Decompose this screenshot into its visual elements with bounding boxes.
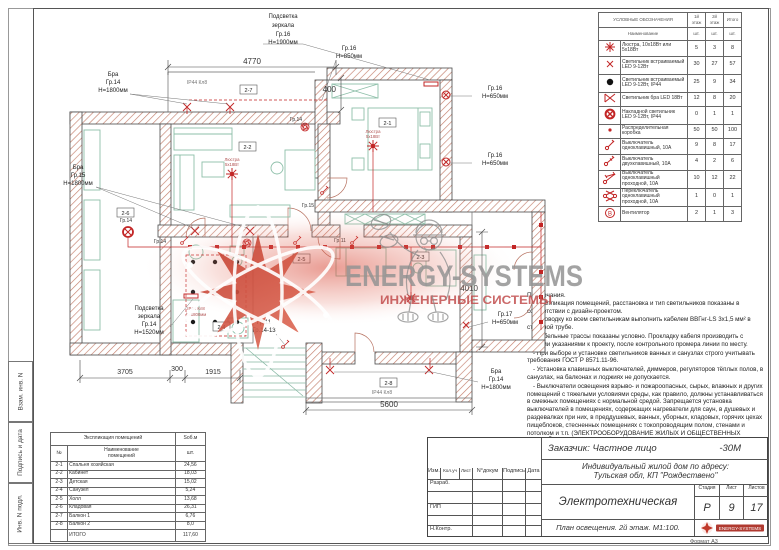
notes-block: Примечания. - Экспликация помещений, рас… [527, 292, 767, 446]
role-nkontr: Н.Контр. [428, 526, 473, 536]
stamp-inv-podl: Инв. N подл. [8, 483, 33, 544]
title-block: Изм. Кол.уч Лист N°докум Подпись Дата Ра… [427, 437, 768, 537]
table-row: 2-2Кабинет18,03 [51, 470, 206, 479]
col-podpis: Подпись [503, 468, 526, 480]
rooms-explication-table: Экспликация помещенийSоб.м №Наименование… [50, 432, 206, 542]
company-logo: ENERGY-SYSTEMS [695, 520, 769, 536]
sheet-value: 9 [720, 497, 744, 520]
switch-one-gang-icon [599, 138, 621, 154]
section-title: Электротехническая часть [542, 485, 695, 520]
object-address-line1: Индивидуальный жилой дом по адресу: [542, 462, 769, 471]
table-row: 2-7Балкон 16,76 [51, 513, 206, 522]
chandelier-icon [599, 41, 621, 57]
object-address-line2: Тульская обл, КП "Рождествено" [542, 471, 769, 480]
sconce-icon [599, 92, 621, 106]
logo-star-icon [701, 522, 713, 534]
stamp-vzam-inv: Взам. инв. N [8, 361, 33, 422]
legend-title: УСЛОВНЫЕ ОБОЗНАЧЕНИЯ [599, 13, 688, 28]
legend-table: УСЛОВНЫЕ ОБОЗНАЧЕНИЯ 1й этаж 2й этаж Ито… [598, 12, 742, 222]
svg-text:В: В [607, 211, 611, 217]
surface-led-icon [599, 106, 621, 124]
stage-label: Стадия [695, 485, 720, 497]
junction-box-icon [599, 124, 621, 138]
sheets-value: 17 [744, 497, 769, 520]
table-row: 2-5Холл13,68 [51, 496, 206, 505]
legend-col-total: Итого [724, 13, 742, 28]
table-row: 2-3Детская15,02 [51, 479, 206, 488]
format-label: Формат А3 [690, 539, 718, 545]
switch-pass-through-icon [599, 170, 621, 188]
table-row: 2-8Балкон 28,0 [51, 521, 206, 530]
fan-icon: В [599, 206, 621, 222]
note-item: - При выборе и установке светильников ва… [527, 350, 767, 366]
drawing-title: План освещения. 2й этаж. М1:100. [542, 520, 695, 536]
legend-col-name: Наименование [599, 28, 688, 41]
sheet-label: Лист [720, 485, 744, 497]
note-item: - Экспликация помещений, расстановка и т… [527, 300, 767, 316]
expl-total-value: 117,60 [175, 530, 205, 542]
recessed-led-icon [599, 56, 621, 74]
stamp-podpis-data: Подпись и дата [8, 422, 33, 483]
table-row: 2-6Кладовая26,31 [51, 504, 206, 513]
col-dokum: N°докум [473, 468, 503, 480]
drawing-sheet: Взам. инв. N Подпись и дата Инв. N подл.… [0, 0, 779, 550]
table-row: 2-4Санузел5,24 [51, 487, 206, 496]
expl-total-label: ИТОГО [68, 530, 176, 542]
col-koluch: Кол.уч [441, 468, 460, 480]
table-row: 2-1Спальня хозяйская24,56 [51, 462, 206, 471]
sheets-label: Листов [744, 485, 769, 497]
col-izm: Изм. [428, 468, 441, 480]
col-list: Лист [460, 468, 473, 480]
stage-value: Р [695, 497, 720, 520]
customer-label: Заказчик: Частное лицо [548, 443, 657, 454]
note-item: - Установка клавишных выключателей, димм… [527, 366, 767, 382]
expl-title: Экспликация помещений [51, 433, 176, 446]
recessed-led-ip44-icon [599, 74, 621, 92]
crossover-switch-icon [599, 188, 621, 206]
notes-title: Примечания. [527, 292, 767, 300]
legend-col-floor1: 1й этаж [688, 13, 706, 28]
col-data: Дата [526, 468, 542, 480]
role-razrab: Разраб. [428, 480, 473, 492]
note-item: - Проводку ко всем светильникам выполнит… [527, 316, 767, 332]
role-gip: ГИП [428, 504, 473, 516]
legend-col-floor2: 2й этаж [706, 13, 724, 28]
logo-text: ENERGY-SYSTEMS [719, 526, 761, 531]
note-item: - Кабельные трассы показаны условно. Про… [527, 333, 767, 349]
project-code: -30М [719, 438, 741, 460]
switch-two-gang-icon [599, 154, 621, 170]
note-item: - Выключатели освещения взрыво- и пожаро… [527, 383, 767, 445]
